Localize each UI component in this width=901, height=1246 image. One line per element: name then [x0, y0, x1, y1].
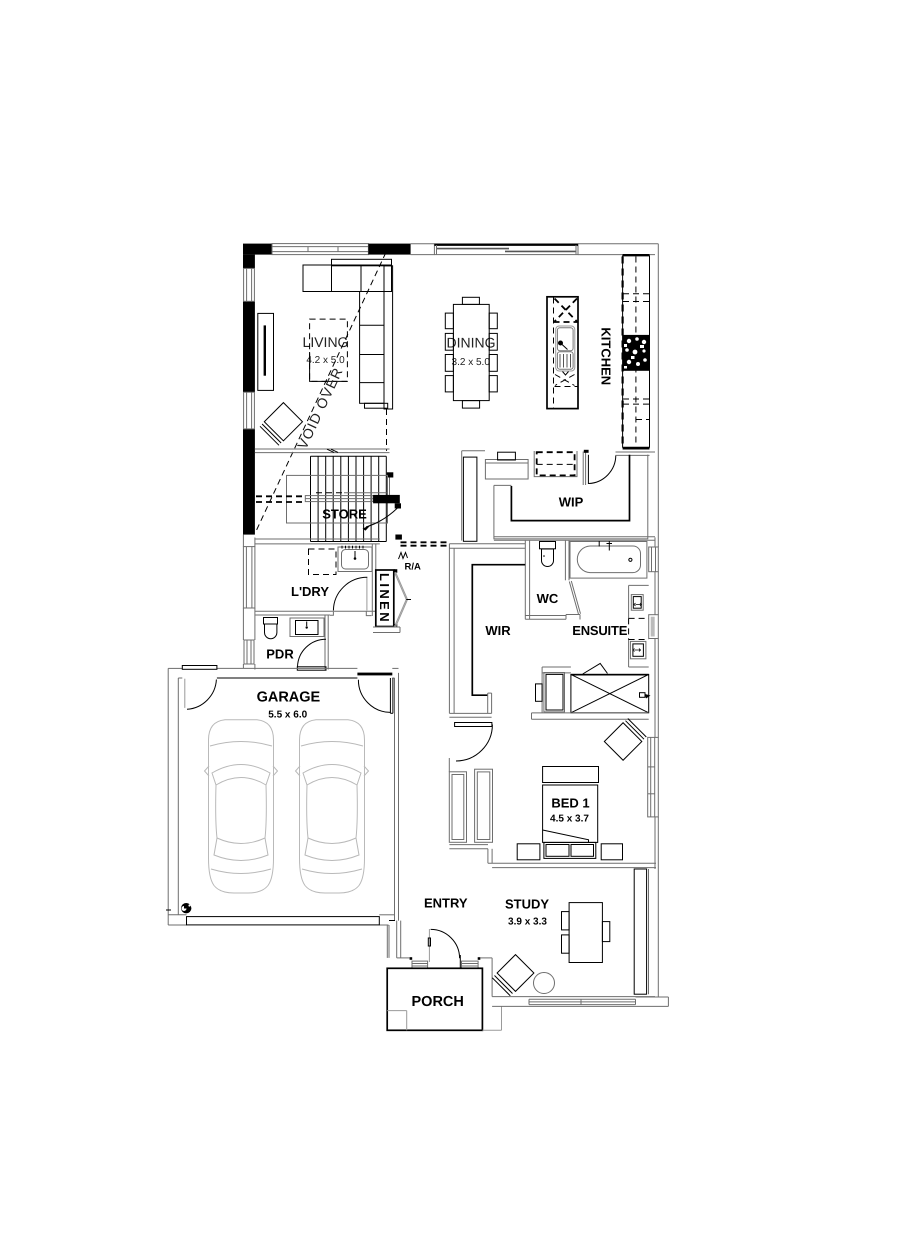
svg-text:R/A: R/A	[405, 562, 422, 573]
svg-text:3.9 x 3.3: 3.9 x 3.3	[508, 917, 547, 928]
svg-text:4.5 x 3.7: 4.5 x 3.7	[550, 814, 589, 825]
svg-text:WIP: WIP	[559, 495, 584, 510]
svg-text:5.5 x 6.0: 5.5 x 6.0	[268, 709, 307, 720]
svg-text:ENSUITE: ENSUITE	[572, 623, 627, 638]
svg-text:4.2 x 5.0: 4.2 x 5.0	[306, 355, 345, 366]
svg-text:PORCH: PORCH	[412, 994, 464, 1010]
svg-text:WIR: WIR	[485, 623, 511, 638]
svg-text:PDR: PDR	[266, 647, 294, 662]
svg-text:STORE: STORE	[322, 507, 367, 522]
svg-text:STUDY: STUDY	[505, 896, 549, 911]
svg-text:LINEN: LINEN	[377, 573, 392, 624]
svg-text:3.2 x 5.0: 3.2 x 5.0	[452, 357, 491, 368]
svg-text:KITCHEN: KITCHEN	[599, 327, 614, 385]
svg-text:ENTRY: ENTRY	[424, 896, 468, 911]
svg-text:GARAGE: GARAGE	[257, 690, 321, 706]
svg-text:WC: WC	[537, 591, 559, 606]
svg-text:L'DRY: L'DRY	[291, 584, 329, 599]
svg-text:BED 1: BED 1	[551, 796, 589, 811]
